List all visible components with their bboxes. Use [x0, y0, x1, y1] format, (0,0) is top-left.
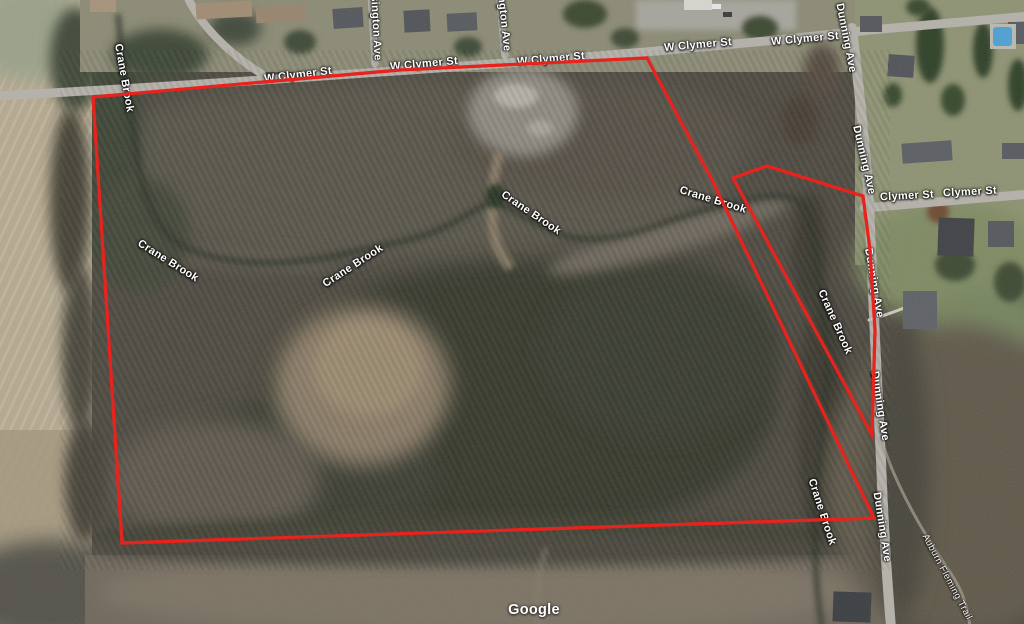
boundary-main-parcel — [93, 58, 874, 543]
satellite-map[interactable]: W Clymer St W Clymer St W Clymer St W Cl… — [0, 0, 1024, 624]
boundary-east-sliver — [733, 166, 875, 435]
property-boundary-overlay — [0, 0, 1024, 624]
